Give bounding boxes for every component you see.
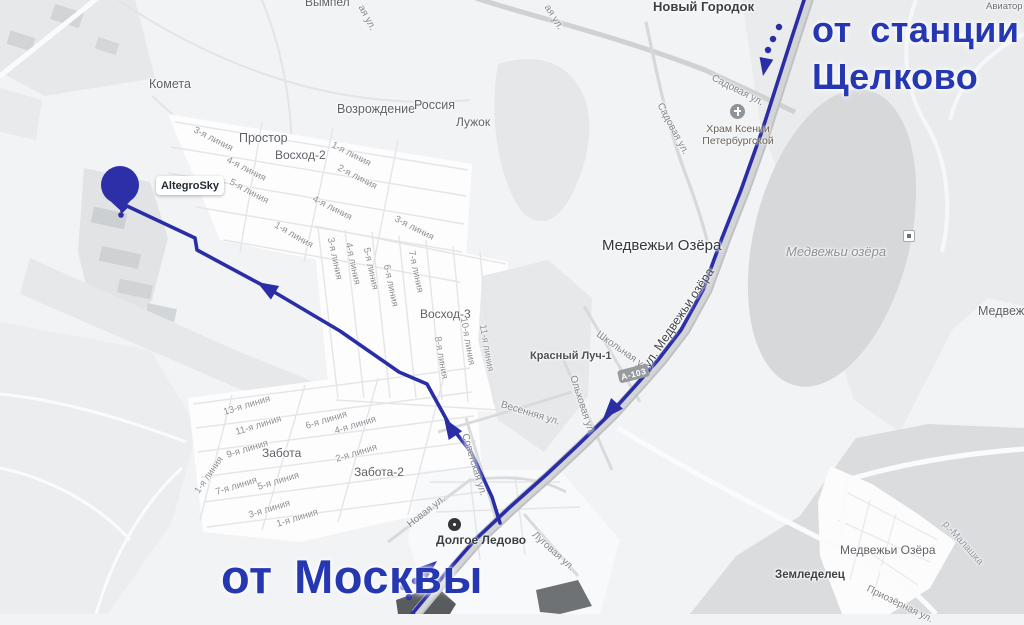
annotation-from-station: от станции Щелково <box>812 6 1020 100</box>
church-icon[interactable] <box>730 104 745 119</box>
arrow-branch-2 <box>253 275 279 300</box>
annotation-from-moscow: от Москвы <box>221 549 483 604</box>
marker-label[interactable]: AltegroSky <box>156 176 224 195</box>
church-label: Храм Ксении Петербургской <box>692 123 784 147</box>
village-point-icon[interactable] <box>448 518 461 531</box>
landmark-icon[interactable] <box>903 230 915 242</box>
village-point-label: Долгое Ледово <box>436 534 526 548</box>
map-canvas[interactable]: ВымпелНовый ГородокАвиаторПросторКометаВ… <box>0 0 1024 614</box>
